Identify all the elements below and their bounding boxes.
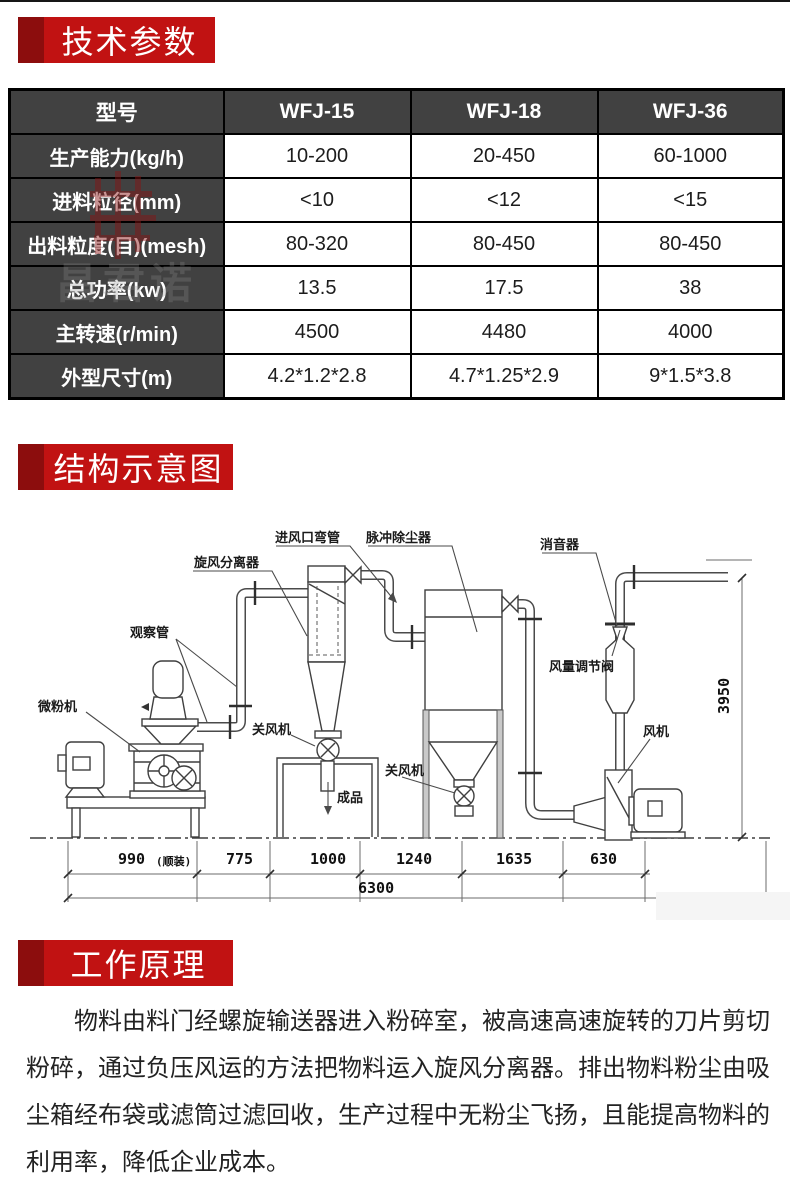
banner-red-bar: 工作原理 [44, 940, 233, 986]
row-label: 生产能力(kg/h) [10, 134, 224, 178]
fan-group [574, 770, 685, 840]
label-air-volume-valve: 风量调节阀 [549, 659, 614, 674]
label-rotary-airlock-1: 关风机 [252, 722, 291, 737]
row-label: 出料粒度(目)(mesh) [10, 222, 224, 266]
cell-value: 4.7*1.25*2.9 [411, 354, 598, 399]
section-banner-tech-params: 技术参数 [18, 17, 215, 63]
banner-dark-square [18, 17, 44, 63]
table-row: 出料粒度(目)(mesh) 80-320 80-450 80-450 [10, 222, 784, 266]
cell-value: 38 [598, 266, 784, 310]
table-row: 进料粒径(mm) <10 <12 <15 [10, 178, 784, 222]
table-row: 外型尺寸(m) 4.2*1.2*2.8 4.7*1.25*2.9 9*1.5*3… [10, 354, 784, 399]
cell-value: <15 [598, 178, 784, 222]
label-muffler: 消音器 [540, 537, 580, 552]
dim-775: 775 [226, 850, 253, 868]
cell-value: 13.5 [224, 266, 411, 310]
cell-value: 80-450 [411, 222, 598, 266]
label-finished-product: 成品 [337, 790, 363, 805]
cell-value: <12 [411, 178, 598, 222]
label-inlet-elbow: 进风口弯管 [275, 530, 340, 545]
top-border-line [0, 0, 790, 2]
dim-990-note: (顺装) [156, 854, 191, 868]
dust-collector-body [425, 590, 502, 710]
cell-value: 4480 [411, 310, 598, 354]
table-row: 总功率(kw) 13.5 17.5 38 [10, 266, 784, 310]
working-principle-paragraph: 物料由料门经螺旋输送器进入粉碎室，被高速高速旋转的刀片剪切粉碎，通过负压风运的方… [26, 998, 774, 1186]
label-pulse-dust-collector: 脉冲除尘器 [365, 530, 432, 545]
section-banner-principle: 工作原理 [18, 940, 233, 986]
banner-red-bar: 技术参数 [44, 17, 215, 63]
label-observation-pipe: 观察管 [130, 625, 169, 640]
cyclone-cone [308, 662, 345, 731]
header-cell-wfj18: WFJ-18 [411, 90, 598, 135]
row-label: 主转速(r/min) [10, 310, 224, 354]
tech-params-table: 型号 WFJ-15 WFJ-18 WFJ-36 生产能力(kg/h) 10-20… [8, 88, 785, 400]
row-label: 外型尺寸(m) [10, 354, 224, 399]
section-title-tech-params: 技术参数 [61, 17, 197, 63]
mill-top-motor [153, 661, 183, 698]
cell-value: 80-450 [598, 222, 784, 266]
structure-diagram-svg: 微粉机 观察管 旋风分离器 进风口弯管 脉冲除尘器 消音器 风量调节阀 关风机 … [0, 505, 790, 930]
banner-dark-square [18, 444, 44, 490]
label-mill: 微粉机 [37, 699, 77, 714]
dim-height-3950: 3950 [715, 678, 733, 714]
dust-collector-group [423, 590, 518, 838]
cell-value: 4.2*1.2*2.8 [224, 354, 411, 399]
dim-990: 990 [118, 850, 145, 868]
section-title-principle: 工作原理 [70, 940, 206, 986]
dust-collector-hopper [429, 742, 497, 780]
cell-value: 10-200 [224, 134, 411, 178]
label-cyclone-separator: 旋风分离器 [193, 555, 260, 570]
cyclone-separator-group [308, 566, 361, 731]
header-cell-model: 型号 [10, 90, 224, 135]
row-label: 总功率(kw) [10, 266, 224, 310]
table-row: 生产能力(kg/h) 10-200 20-450 60-1000 [10, 134, 784, 178]
section-banner-structure: 结构示意图 [18, 444, 233, 490]
table-row: 主转速(r/min) 4500 4480 4000 [10, 310, 784, 354]
label-fan: 风机 [643, 724, 669, 739]
dim-630: 630 [590, 850, 617, 868]
table-header-row: 型号 WFJ-15 WFJ-18 WFJ-36 [10, 90, 784, 135]
banner-red-bar: 结构示意图 [44, 444, 233, 490]
cell-value: 20-450 [411, 134, 598, 178]
row-label: 进料粒径(mm) [10, 178, 224, 222]
banner-dark-square [18, 940, 44, 986]
fan-inlet-cone [574, 797, 607, 831]
label-rotary-airlock-2: 关风机 [385, 763, 424, 778]
cell-value: 17.5 [411, 266, 598, 310]
dim-1240: 1240 [396, 850, 432, 868]
header-cell-wfj36: WFJ-36 [598, 90, 784, 135]
cell-value: 4000 [598, 310, 784, 354]
dim-total-6300: 6300 [358, 879, 394, 897]
cell-value: 4500 [224, 310, 411, 354]
header-cell-wfj15: WFJ-15 [224, 90, 411, 135]
cell-value: 80-320 [224, 222, 411, 266]
cell-value: 60-1000 [598, 134, 784, 178]
section-title-structure: 结构示意图 [53, 444, 223, 490]
faded-patch [656, 892, 790, 920]
mill-group [129, 661, 205, 798]
cell-value: <10 [224, 178, 411, 222]
dim-1635: 1635 [496, 850, 532, 868]
dim-1000: 1000 [310, 850, 346, 868]
cell-value: 9*1.5*3.8 [598, 354, 784, 399]
